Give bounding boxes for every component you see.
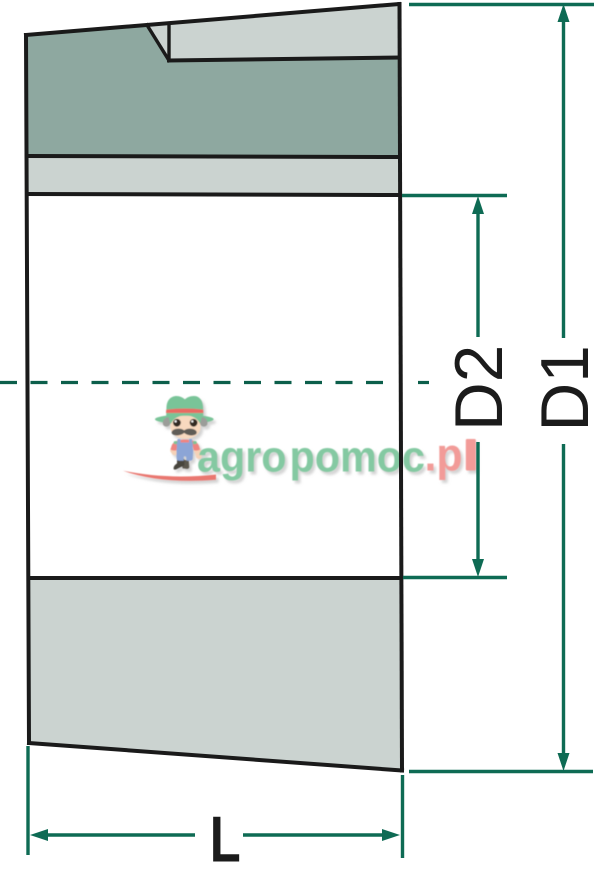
svg-text:D2: D2 <box>442 345 517 431</box>
svg-text:L: L <box>210 803 241 876</box>
svg-text:pomoc: pomoc <box>290 433 426 482</box>
svg-text:D1: D1 <box>528 345 600 431</box>
svg-text:.p: .p <box>425 429 463 481</box>
svg-text:agro: agro <box>197 433 287 482</box>
